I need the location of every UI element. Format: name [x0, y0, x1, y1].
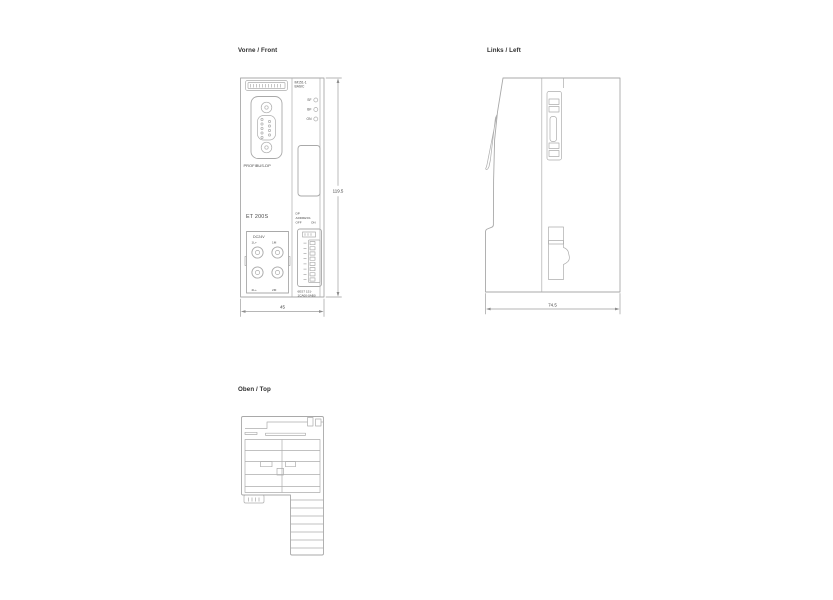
led-on-icon [314, 117, 318, 121]
terminal-2m-label: 2M [272, 288, 277, 292]
left-view-title: Links / Left [487, 47, 521, 54]
rating-plate-label [246, 81, 288, 91]
terminal-1l-label: 1L+ [252, 241, 257, 245]
dip-text-line2: ADDRESS [296, 216, 311, 220]
bus-connector-side [547, 92, 562, 161]
order-number-text: 6ES7 151- 1CA00-0AB0 [298, 290, 316, 298]
front-view: Vorne / Front [238, 47, 344, 317]
led-on-label: ON [307, 117, 313, 121]
led-bf-icon [314, 108, 318, 112]
dip-switch-block [298, 229, 322, 287]
din-rail-latch [486, 115, 497, 170]
front-width-dimension: 45 [241, 299, 325, 317]
power-terminal-block: DC24V 1L+ 1M 2L+ 2M [245, 232, 290, 294]
top-column-ribs [291, 500, 324, 548]
dip-text-off: OFF [296, 221, 302, 225]
led-sf-icon [314, 98, 318, 102]
terminal-screws [252, 247, 283, 278]
module-id-text: IM151-1 BASIC [295, 81, 307, 89]
manual-page: Vorne / Front [0, 0, 833, 600]
top-front-edge-detail [245, 418, 324, 436]
power-label: DC24V [253, 235, 265, 239]
top-view: Oben / Top [238, 386, 324, 555]
top-outline [242, 417, 324, 556]
top-mounting-tab [244, 495, 264, 503]
front-view-title: Vorne / Front [238, 47, 277, 54]
width-dimension-value: 45 [280, 305, 285, 310]
status-leds: SF BF ON [307, 98, 318, 121]
led-sf-label: SF [307, 98, 311, 102]
profibus-label: PROFIBUS-DP [244, 163, 272, 168]
terminal-2l-label: 2L+ [252, 288, 257, 292]
height-dimension-value: 119.5 [333, 189, 344, 194]
front-height-dimension: 119.5 [326, 78, 344, 297]
terminal-1m-label: 1M [272, 241, 277, 245]
blank-label-window [298, 146, 320, 197]
dip-address-text: DP ADDRESS OFF ON [296, 212, 316, 225]
left-depth-dimension: 74.5 [486, 294, 621, 315]
left-view: Links / Left 74.5 [486, 47, 621, 314]
dip-text-on: ON [311, 221, 316, 225]
technical-drawing: Vorne / Front [0, 0, 833, 600]
dip-switch-rows [304, 242, 316, 282]
top-vent-grid [245, 440, 320, 493]
led-bf-label: BF [307, 108, 311, 112]
top-view-title: Oben / Top [238, 386, 271, 393]
left-module-outline [486, 78, 621, 292]
depth-dimension-value: 74.5 [548, 303, 557, 308]
order-number-line2: 1CA00-0AB0 [298, 294, 316, 298]
product-label: ET 200S [246, 214, 268, 220]
label-print-marks [251, 84, 281, 88]
module-name-line2: BASIC [295, 85, 306, 89]
dsub-pins [261, 118, 271, 138]
terminal-side-profile [549, 227, 570, 280]
dip-text-line1: DP [296, 212, 300, 216]
dsub-connector-icon [251, 97, 282, 159]
